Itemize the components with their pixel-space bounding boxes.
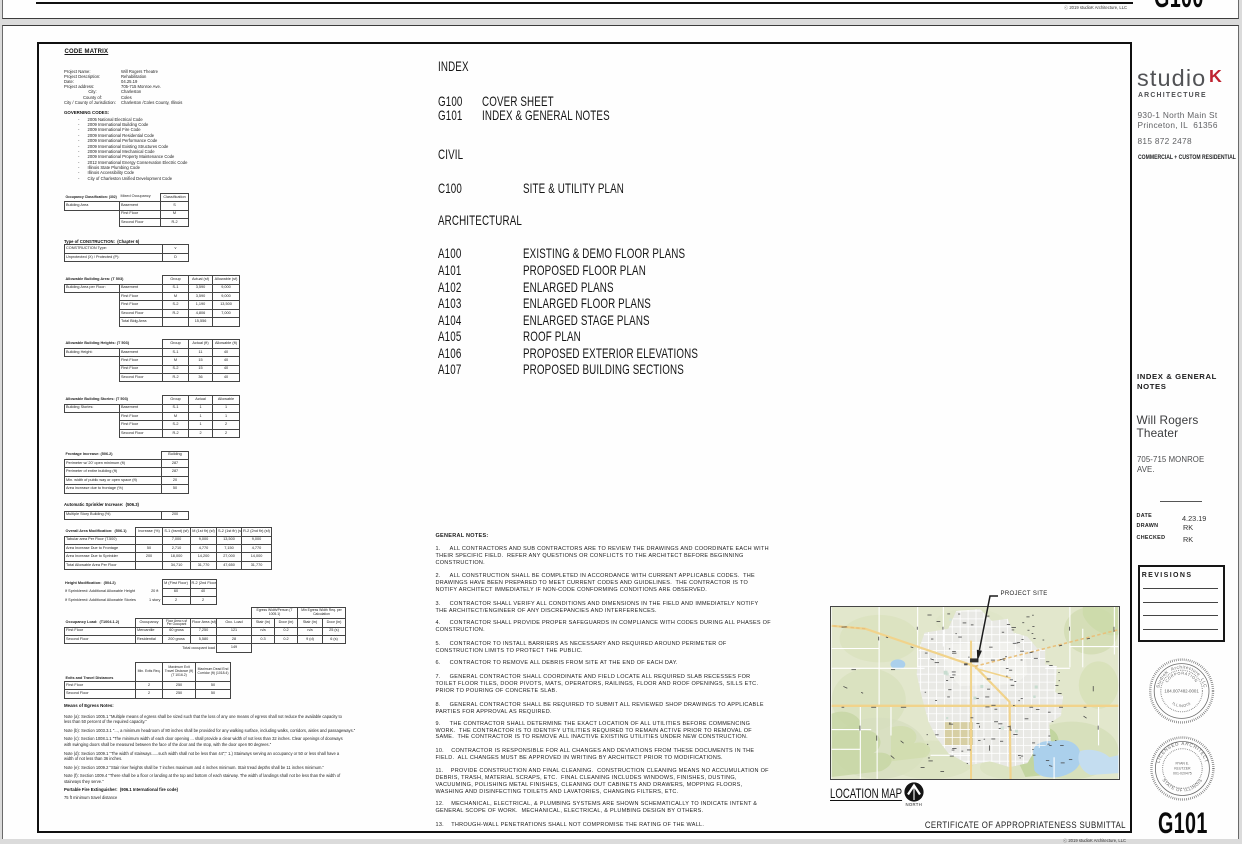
svg-text:KEUTZER: KEUTZER (1174, 767, 1191, 771)
svg-text:CORPORATION: CORPORATION (1165, 671, 1199, 683)
svg-text:StudioK Architecture LLC: StudioK Architecture LLC (1155, 664, 1208, 688)
svg-text:ILLINOIS: ILLINOIS (1171, 701, 1191, 708)
svg-text:001-020475: 001-020475 (1173, 772, 1192, 776)
svg-text:RYAN E.: RYAN E. (1176, 762, 1190, 766)
svg-text:STATE OF ILLINOIS: STATE OF ILLINOIS (1161, 778, 1203, 793)
svg-text:184.007482-0001: 184.007482-0001 (1164, 689, 1199, 694)
